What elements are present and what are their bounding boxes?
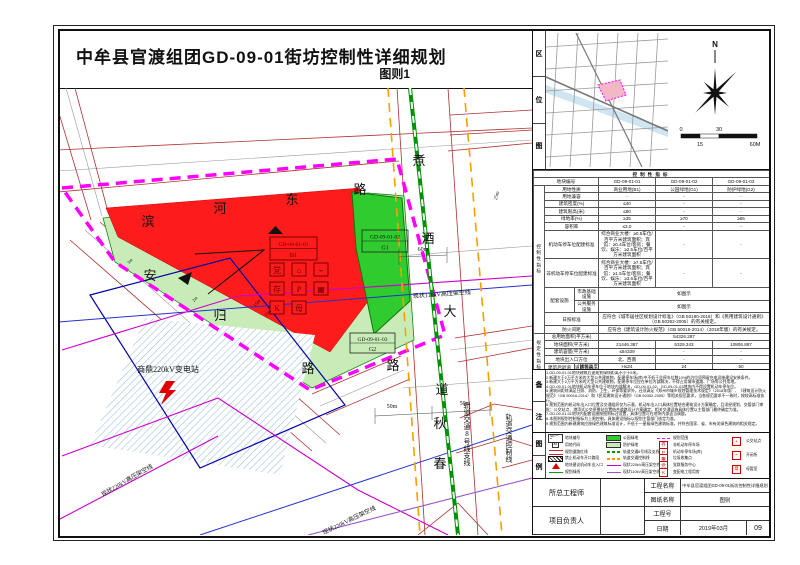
location-section: 区 位 图 N (533, 31, 769, 170)
legend-item: +公交站点 (729, 439, 767, 444)
row-label: 建筑限高(米) (545, 208, 599, 215)
notes-body: 1.GD-09-01-01地块建筑后退规划绿线距离不小于5米。2.新建大于2万平… (546, 371, 767, 431)
title-area: 中牟县官渡组团GD-09-01街坊控制性详细规划 图则1 (60, 31, 532, 89)
location-vertical-label: 区 位 图 (533, 31, 546, 169)
project-name-value: 中牟县官渡组团GD-09-01街坊控制性详细规划 (681, 479, 769, 493)
sheet-index-label: 图则1 (379, 65, 410, 82)
legend-item-label: 现状220kV高压架空线 (623, 463, 660, 468)
value-cell: ≥65 (713, 215, 770, 222)
row-label: 建筑密度(%) (545, 200, 599, 207)
project-no-label: 工程号 (645, 507, 681, 521)
value-cell: 综合商业大楼：≥0.5车位/百平方米建筑面积；宾馆：≥0.4车位/客房；餐饮、娱… (599, 230, 656, 259)
facility-icon-glyph: ⌁ (319, 266, 324, 275)
table-title: 控制性指标 (534, 171, 770, 178)
chief-engineer-value (601, 479, 645, 507)
map-annotation: 商鼎220kV变电站 (137, 364, 199, 374)
plot-number-cell: GD-09-01-02 (656, 178, 713, 185)
row-label: 容积率 (545, 223, 599, 230)
plot1-code: B1 (290, 252, 298, 259)
legend-item-label: 用地代码 (565, 443, 580, 448)
map-annotation: 25m (494, 191, 501, 201)
notes-label-char: 备 (533, 370, 545, 402)
facility-icon-glyph: ▦ (317, 285, 325, 294)
legend-item-label: 轨道交通控制线 (623, 456, 650, 461)
legend-item: 地块建议机动车出入口 (548, 463, 606, 468)
value-cell: 如图示 (599, 300, 770, 313)
legend-item: 轨道交通8号线及支线 (606, 450, 656, 455)
value-cell: - (656, 193, 713, 200)
facility-icon-glyph: 存 (273, 284, 281, 294)
drawing-name-value: 图则 (681, 493, 769, 507)
drawing-name-label: 图纸名称 (645, 493, 681, 507)
row-label: 绿地率(%) (545, 215, 599, 222)
plot-number-cell: GD-09-01-03 (713, 178, 770, 185)
value-cell: - (656, 208, 713, 215)
scale-15: 15 (697, 142, 703, 148)
row-label: 配套设施 (545, 287, 575, 313)
legend-item: 轨道交通控制线 (606, 456, 656, 461)
legend-item-label: 现状110kV高压架空线 (623, 470, 660, 475)
sub-label: 公共服务设施 (575, 300, 599, 313)
facility-icon-glyph: P (297, 285, 302, 294)
facility-icon-glyph: K (274, 304, 280, 313)
note-line: 5.建筑间距除满足日照、消防、卫生、环保等要求外，还须满足《郑州市城乡规划管理技… (546, 389, 767, 403)
value-cell: - (656, 259, 713, 288)
legend-item: 防护绿地 (606, 443, 656, 448)
value-cell: - (713, 356, 770, 363)
title-block: 所总工程师 项目负责人 工程名称 中牟县官渡组团GD-09-01街坊控制性详细规… (533, 479, 769, 535)
notes-vertical-label: 备 注 (533, 370, 546, 432)
legend-label-char: 例 (533, 456, 545, 478)
legend-item-label: 党群服务中心 (673, 463, 696, 468)
row-label: 总用地面积(平方米) (545, 333, 599, 340)
location-label-char: 区 (533, 31, 545, 77)
value-cell: ≤64339 (599, 348, 656, 355)
north-label: N (712, 40, 718, 49)
value-cell: 如图示 (599, 287, 770, 300)
legend-item: 禁止机动车开口路段 (548, 456, 606, 461)
value-cell: - (656, 356, 713, 363)
value-cell: 54326.287 (599, 333, 770, 340)
project-leader-value (601, 507, 645, 535)
legend-column: 规划范围存非机动车停车场P机动车停车场(库)▦垃圾收集点党党群服务中心K变配电工… (656, 435, 728, 476)
legend-item: 现状110kV高压架空线 (606, 470, 656, 475)
legend-item: 母母婴室 (729, 467, 767, 472)
value-cell: - (713, 259, 770, 288)
value-cell: 10806.897 (713, 341, 770, 348)
date-label: 日期 (645, 521, 681, 535)
legend-item-label: 公园绿地 (623, 436, 638, 441)
value-cell: 公园绿地(G1) (656, 185, 713, 192)
facility-icon-glyph: 党 (273, 265, 281, 275)
value-cell: - (599, 193, 656, 200)
street-name-char: 滨 (141, 214, 154, 229)
scale-60m: 60M (750, 142, 761, 148)
group-label-prescriptive: 规定性指标 (534, 333, 545, 369)
value-cell: 21446.387 (599, 341, 656, 348)
legend-item-label: 开闭所 (746, 453, 757, 458)
street-name-char: 大 (443, 304, 456, 319)
street-name-char: 东 (285, 192, 298, 207)
row-label: 地块出入口方位 (545, 356, 599, 363)
scale-0: 0 (679, 127, 682, 133)
legend-item: 规划道路红线 (548, 450, 606, 455)
project-leader-label: 项目负责人 (533, 507, 601, 535)
street-name-char: 酒 (421, 231, 434, 246)
legend-item-label: 地块编号 (565, 436, 580, 441)
map-annotation: 60m (418, 247, 429, 253)
street-name-char: 春 (433, 456, 446, 471)
map-annotation: 现状220kV高压架空线 (100, 462, 155, 498)
map-annotation: 轨道交通8号线支线 (463, 401, 471, 466)
row-label: 用地性质 (545, 185, 599, 192)
value-cell: 综合商业大楼：≥7.5车位/百平方米建筑面积；宾馆：≥1.5车位/客房；餐饮、娱… (599, 259, 656, 288)
plan-map-svg: GD-09-01-01 B1 GD-09-01-02 G1 GD-09-01-0… (60, 88, 532, 535)
map-annotation: 50m (460, 401, 471, 407)
row-label: 地块面积(平方米) (545, 341, 599, 348)
street-name-char: 煮 (412, 153, 425, 168)
plan-sheet: 中牟县官渡组团GD-09-01街坊控制性详细规划 图则1 (0, 0, 800, 565)
value-cell: 北、西南 (599, 356, 656, 363)
value-cell: 防护绿地(G2) (713, 185, 770, 192)
location-map-thumbnail (546, 33, 668, 167)
legend-section: 图 例 GD-**-**地块编号B1用地代码规划道路红线禁止机动车开口路段地块建… (533, 433, 769, 479)
row-label: 机动车停车位配建标准 (545, 230, 599, 259)
value-cell: 应符合《城市居住区规划设计标准》（GB 50180-2018）和《民用建筑设计通… (599, 313, 770, 326)
map-annotation: 轨道交通控制线 (505, 413, 513, 463)
legend-item-label: 禁止机动车开口路段 (565, 456, 599, 461)
plot1-label-box: GD-09-01-01 B1 (270, 237, 317, 260)
facility-icon-glyph: 母 (295, 304, 303, 313)
row-label: 防火间距 (545, 326, 599, 333)
row-label: 非机动车停车位配建标准 (545, 259, 599, 288)
value-cell: ≥70 (656, 215, 713, 222)
legend-column: GD-**-**地块编号B1用地代码规划道路红线禁止机动车开口路段地块建议机动车… (548, 435, 606, 476)
substation-hatch-area (90, 318, 315, 475)
sheet-number: 09 (747, 521, 769, 535)
legend-label-char: 图 (533, 433, 545, 456)
value-cell: - (713, 208, 770, 215)
legend-item-label: 母婴室 (746, 467, 757, 472)
street-name-char: 路 (353, 182, 366, 197)
street-name-char: 路 (386, 358, 399, 373)
chief-engineer-label: 所总工程师 (533, 479, 601, 507)
notes-label-char: 注 (533, 402, 545, 433)
group-label-control: 控制性指标 (534, 185, 545, 333)
street-name-char: 归 (213, 308, 226, 323)
legend-item: ⌁开闭所 (729, 453, 767, 458)
value-cell: - (656, 230, 713, 259)
legend-item-label: 轨道交通8号线及支线 (623, 450, 659, 455)
value-cell: 应符合《建筑设计防火规范》（GB 50016-2014）（2018年版）的有关规… (599, 326, 770, 333)
plot1-number: GD-09-01-01 (279, 242, 309, 248)
plot2-number: GD-09-01-02 (370, 235, 400, 241)
facility-icon-glyph: ⌂ (297, 266, 302, 275)
value-cell: - (713, 200, 770, 207)
value-cell: 5329.343 (656, 341, 713, 348)
value-cell: ≤40 (599, 200, 656, 207)
value-cell: - (656, 348, 713, 355)
value-cell: - (713, 223, 770, 230)
scale-bar: 0 30 15 60M (679, 127, 760, 148)
plot3-number: GD-09-01-03 (358, 337, 388, 343)
sub-label: 市政基础设施 (575, 287, 599, 300)
legend-item: B1用地代码 (548, 443, 606, 448)
row-label: 建筑容量(平方米) (545, 348, 599, 355)
legend-item-label: 地块建议机动车出入口 (565, 463, 603, 468)
plot-number-cell: GD-09-01-01 (599, 178, 656, 185)
compass-area: N 0 30 15 60M (671, 31, 769, 170)
indicator-table-section: 控制性指标地块编号GD-09-01-01GD-09-01-02GD-09-01-… (533, 170, 769, 369)
legend-column: 公园绿地防护绿地轨道交通8号线及支线轨道交通控制线现状220kV高压架空线现状1… (606, 435, 656, 476)
value-cell: ≥35 (599, 215, 656, 222)
street-name-char: 道 (435, 382, 448, 397)
street-name-char: 秋 (433, 416, 446, 431)
value-cell: ≤3.0 (599, 223, 656, 230)
legend-item: 公园绿地 (606, 436, 656, 441)
legend-item-label: 规划范围 (673, 436, 688, 441)
street-name-char: 河 (213, 201, 226, 216)
legend-item-label: 公交站点 (746, 439, 761, 444)
scale-30: 30 (716, 127, 722, 133)
plot3-code: G2 (369, 347, 376, 353)
note-line: 9.规划范围内新建建筑应按绿色建筑标准设计，不低于一星级绿色建筑标准，并符合国家… (546, 422, 767, 427)
project-no-value (681, 507, 769, 521)
legend-item-label: 变配电工程用房 (673, 470, 700, 475)
value-cell: - (713, 348, 770, 355)
legend-item-label: 规划道路红线 (565, 450, 588, 455)
plan-map: GD-09-01-01 B1 GD-09-01-02 G1 GD-09-01-0… (60, 88, 532, 535)
location-label-char: 位 (533, 77, 545, 123)
legend-item-label: 规划绿线 (565, 470, 580, 475)
value-cell: - (713, 230, 770, 259)
legend-item: 规划绿线 (548, 470, 606, 475)
location-label-char: 图 (533, 124, 545, 169)
legend-item-label: 非机动车停车场 (673, 443, 700, 448)
indicator-table: 控制性指标地块编号GD-09-01-01GD-09-01-02GD-09-01-… (533, 170, 769, 369)
legend-item: GD-**-**地块编号 (548, 436, 606, 441)
value-cell: - (656, 223, 713, 230)
value-cell: 商业用地(B1) (599, 185, 656, 192)
legend-item: K变配电工程用房 (656, 470, 728, 475)
value-cell: - (713, 193, 770, 200)
plot3-label-box: GD-09-01-03 G2 (350, 333, 395, 353)
notes-section: 备 注 1.GD-09-01-01地块建筑后退规划绿线距离不小于5米。2.新建大… (533, 369, 769, 433)
value-cell: - (656, 200, 713, 207)
row-label: 用地兼容 (545, 193, 599, 200)
row-label: 日照标准 (545, 313, 599, 326)
legend-item-label: 防护绿地 (623, 443, 638, 448)
street-name-char: 安 (143, 268, 156, 283)
legend-column: +公交站点⌁开闭所母母婴室 (729, 435, 767, 476)
legend-item: 现状220kV高压架空线 (606, 463, 656, 468)
wind-rose-icon (695, 68, 736, 115)
value-cell: ≤80 (599, 208, 656, 215)
project-name-label: 工程名称 (645, 479, 681, 493)
street-name-char: 路 (301, 361, 314, 376)
row-label: 地块编号 (534, 178, 599, 185)
legend-item-label: 机动车停车场(库) (673, 450, 702, 455)
legend-item-label: 垃圾收集点 (673, 456, 692, 461)
map-annotation: 50m (387, 404, 398, 410)
date-value: 2019年03月 (681, 521, 747, 535)
right-panel: 区 位 图 N (532, 31, 769, 535)
plot2-code: G1 (381, 246, 388, 252)
legend-vertical-label: 图 例 (533, 433, 546, 478)
